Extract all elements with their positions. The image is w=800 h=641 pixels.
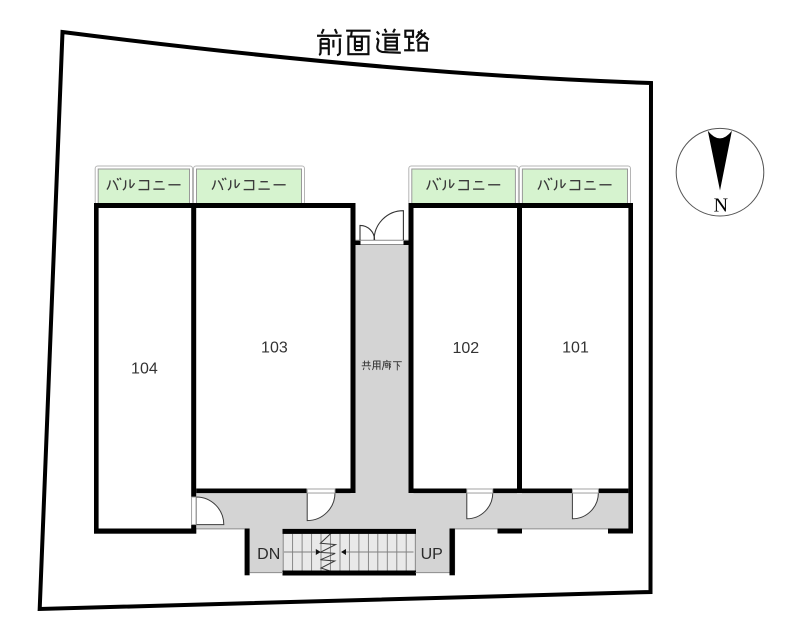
svg-text:103: 103 bbox=[261, 340, 288, 357]
svg-text:N: N bbox=[714, 195, 728, 217]
svg-text:102: 102 bbox=[452, 340, 479, 357]
svg-text:UP: UP bbox=[421, 546, 443, 563]
svg-text:104: 104 bbox=[131, 361, 158, 378]
svg-text:DN: DN bbox=[257, 546, 280, 563]
svg-text:101: 101 bbox=[562, 340, 589, 357]
